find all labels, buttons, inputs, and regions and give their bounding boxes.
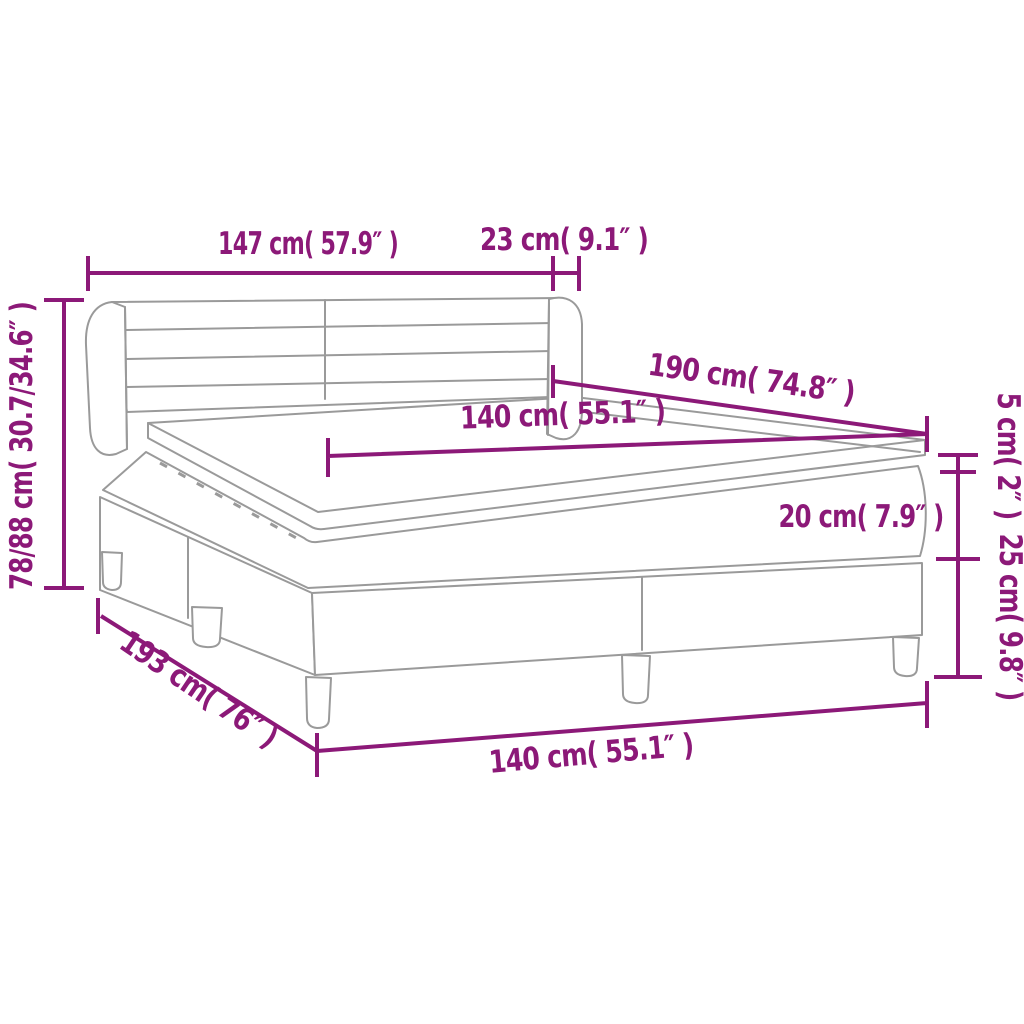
dim-label-base-height: 25 cm( 9.8″ ) (992, 534, 1024, 701)
dim-label-wing-depth: 23 cm( 9.1″ ) (480, 222, 648, 258)
leg-front-right (893, 637, 919, 676)
dim-label-headboard-width: 147 cm( 57.9″ ) (218, 226, 398, 262)
leg-back-left (102, 552, 122, 590)
dim-label-width-top: 140 cm( 55.1″ ) (460, 393, 666, 436)
dim-label-length-top: 190 cm( 74.8″ ) (646, 347, 857, 412)
headboard-left-wing (86, 302, 127, 455)
leg-front-middle (622, 655, 650, 703)
leg-front-left (306, 677, 331, 728)
leg-mid-left (192, 607, 222, 647)
dim-line (934, 455, 982, 677)
dim-line (44, 300, 84, 588)
dim-width-bottom: 140 cm( 55.1″ ) (317, 681, 927, 781)
diagram-canvas: 147 cm( 57.9″ ) 23 cm( 9.1″ ) 78/88 cm( … (0, 0, 1024, 1024)
dim-total-height: 78/88 cm( 30.7/34.6″ ) (4, 300, 84, 590)
dim-label-total-height: 78/88 cm( 30.7/34.6″ ) (4, 302, 40, 590)
dim-label-mattress-height: 20 cm( 7.9″ ) (779, 499, 944, 535)
dim-label-topper-height: 5 cm( 2″ ) (990, 393, 1024, 520)
dim-headboard-width: 147 cm( 57.9″ ) 23 cm( 9.1″ ) (88, 222, 648, 291)
dimension-diagram: 147 cm( 57.9″ ) 23 cm( 9.1″ ) 78/88 cm( … (0, 0, 1024, 1024)
